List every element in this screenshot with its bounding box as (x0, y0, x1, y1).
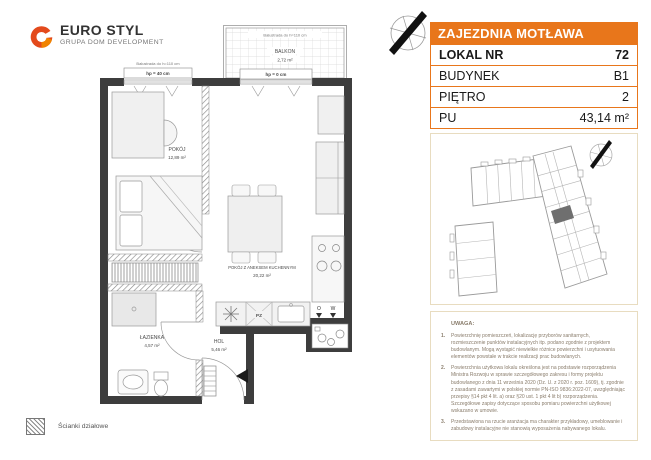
row-label: BUDYNEK (439, 69, 499, 83)
room-area-hol: 5,46 m² (211, 347, 227, 352)
room-label-pokoj: POKÓJ (169, 146, 186, 153)
row-value: B1 (614, 69, 629, 83)
compass-icon (389, 11, 427, 55)
hp0-label: hp = 0 cm (266, 72, 287, 77)
entrance-arrow-icon (236, 369, 248, 383)
row-value: 72 (615, 48, 629, 62)
shaft-w-label: W (331, 306, 336, 312)
table-row-pietro: PIĘTRO 2 (431, 86, 637, 107)
row-label: LOKAL NR (439, 48, 503, 62)
partition-hatch-swatch (26, 418, 45, 435)
hall-cabinet (204, 366, 216, 396)
room-label-salon: POKÓJ Z ANEKSEM KUCHENNYM (228, 265, 296, 270)
pz-label: PZ (256, 313, 262, 319)
notes-title: UWAGA: (451, 321, 625, 327)
project-name-header: ZAJEZDNIA MOTŁAWA (430, 22, 638, 45)
legend-label: Ścianki działowe (58, 423, 108, 430)
logo: EURO STYL GRUPA DOM DEVELOPMENT (28, 23, 164, 51)
room-label-lazienka: ŁAZIENKA (140, 335, 165, 341)
room-area-lazienka: 4,57 m² (144, 343, 160, 348)
table-row-pu: PU 43,14 m² (431, 107, 637, 128)
row-value: 43,14 m² (580, 111, 629, 125)
room-area-pokoj: 12,89 m² (168, 155, 186, 160)
building-plan (431, 134, 637, 304)
building-location-box (430, 133, 638, 305)
table-row-budynek: BUDYNEK B1 (431, 65, 637, 86)
property-sheet: { "logo": { "brand": "EURO STYL", "subti… (0, 0, 651, 460)
note-item: 1. Powierzchnię pomieszczeń, lokalizację… (441, 333, 625, 361)
table-row-lokal: LOKAL NR 72 (431, 45, 637, 65)
hp40-label: hp = 40 cm (146, 71, 169, 76)
mini-compass-icon (590, 140, 612, 169)
balcony-balustrade-label: Balustrada do h=110 cm (263, 33, 307, 38)
eurostyl-logo-icon (28, 23, 55, 51)
row-label: PU (439, 111, 456, 125)
unit-info-table: LOKAL NR 72 BUDYNEK B1 PIĘTRO 2 PU 43,14… (430, 45, 638, 129)
meters (312, 324, 348, 348)
window-balustrade-label: Balustrada do h=110 cm (136, 61, 180, 66)
legend: Ścianki działowe (26, 418, 108, 435)
room-area-balkon: 2,72 m² (277, 58, 293, 63)
logo-subtitle: GRUPA DOM DEVELOPMENT (60, 39, 164, 46)
hob-icon (223, 306, 239, 322)
notes-box: UWAGA: 1. Powierzchnię pomieszczeń, loka… (430, 311, 638, 441)
room-label-balkon: BALKON (275, 49, 296, 55)
wardrobe (112, 263, 198, 282)
note-item: 2. Powierzchnia użytkowa lokalu określon… (441, 365, 625, 415)
row-value: 2 (622, 90, 629, 104)
room-label-hol: HOL (214, 339, 225, 345)
row-label: PIĘTRO (439, 90, 486, 104)
bedroom-furniture (112, 92, 202, 250)
logo-brand: EURO STYL (60, 23, 164, 37)
note-item: 3. Przedstawiona na rzucie aranżacja ma … (441, 419, 625, 433)
shaft-o-label: O (317, 306, 321, 312)
room-area-salon: 20,22 m² (253, 273, 271, 278)
